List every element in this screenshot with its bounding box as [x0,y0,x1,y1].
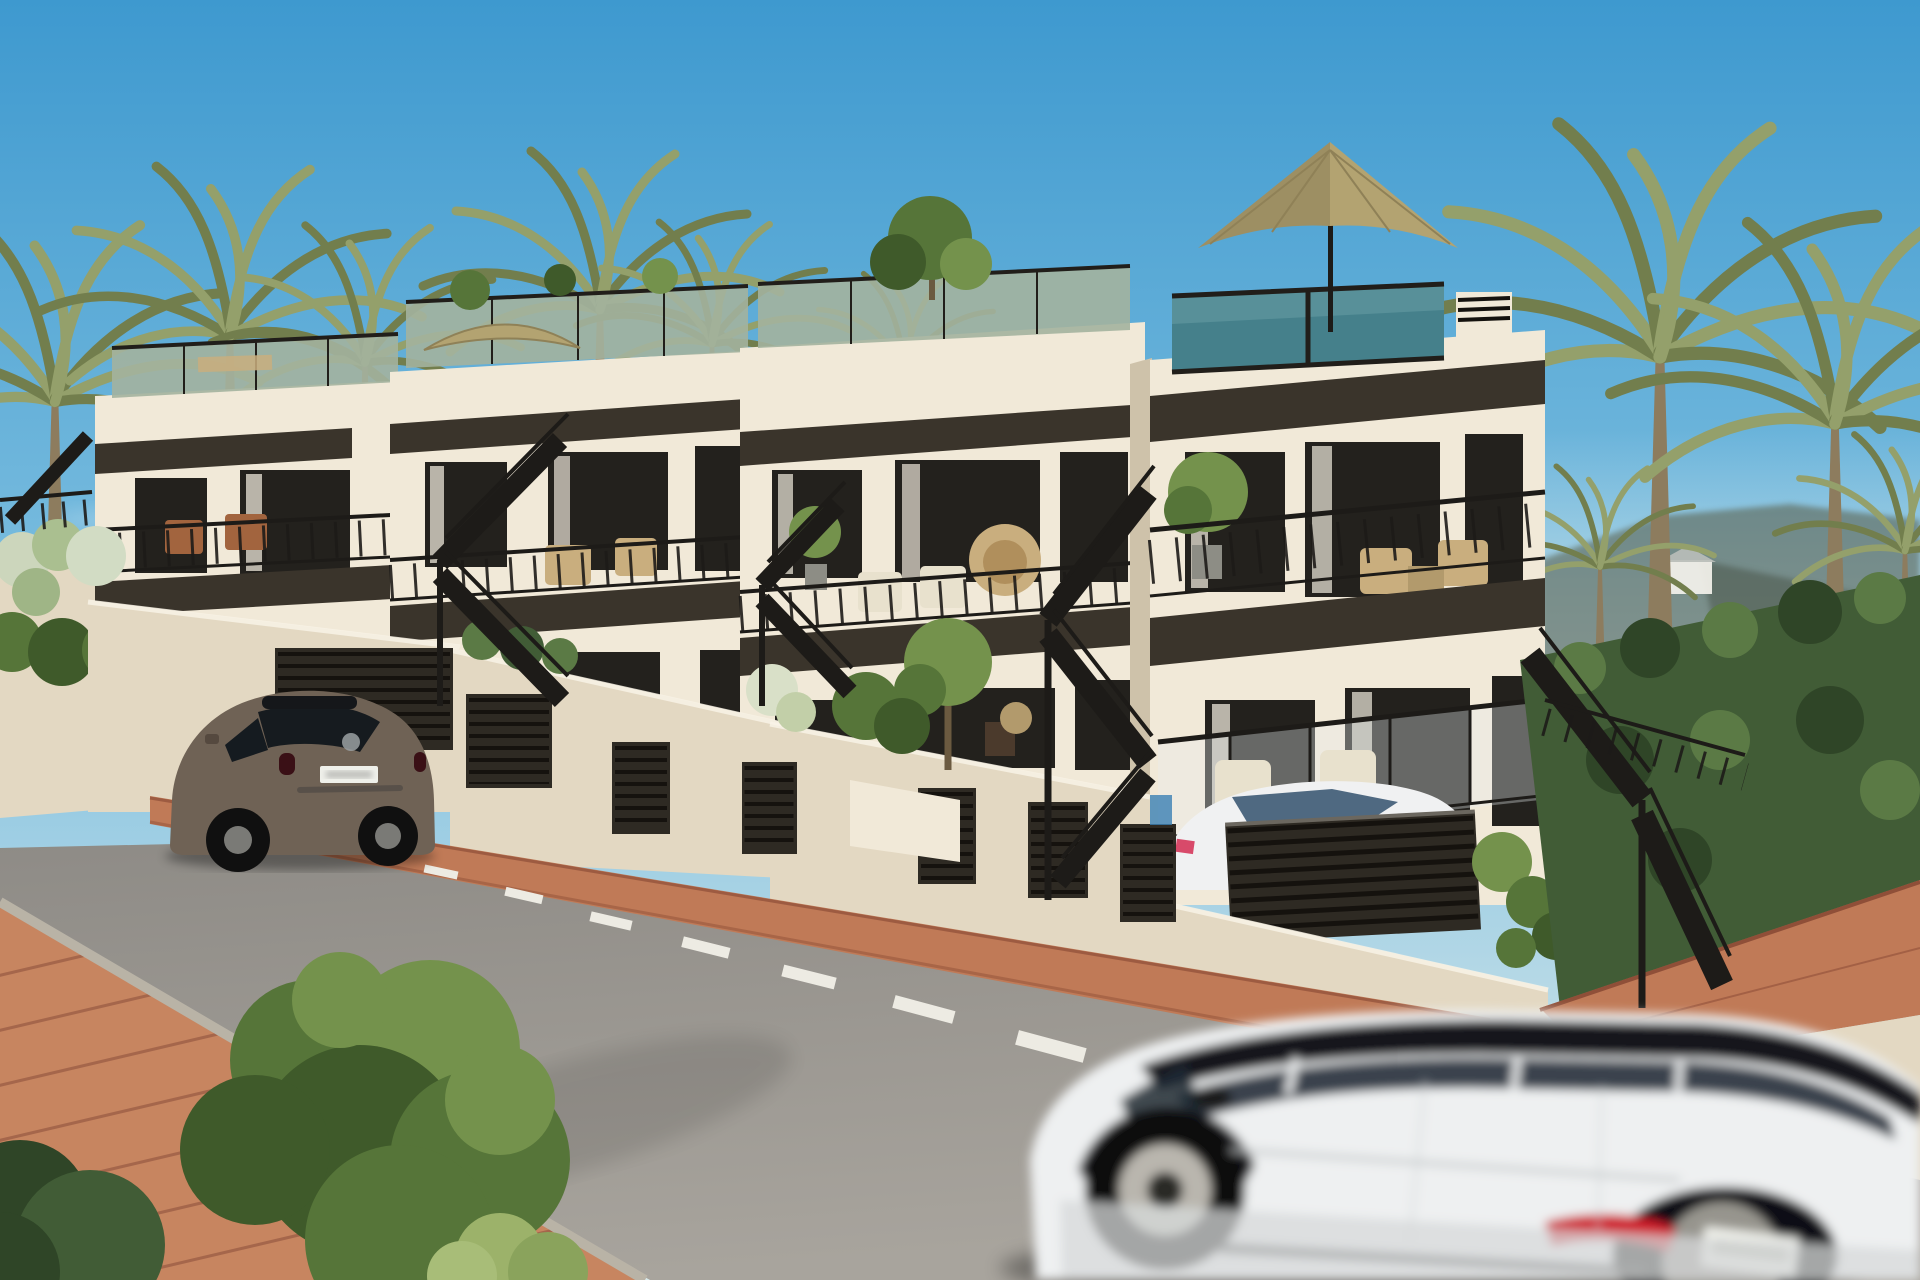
townhouse-4 [1130,284,1604,968]
chimney [1456,292,1512,356]
property-render-image [0,0,1920,1280]
slatted-gate [1225,811,1481,942]
suv-car [1000,1010,1920,1280]
